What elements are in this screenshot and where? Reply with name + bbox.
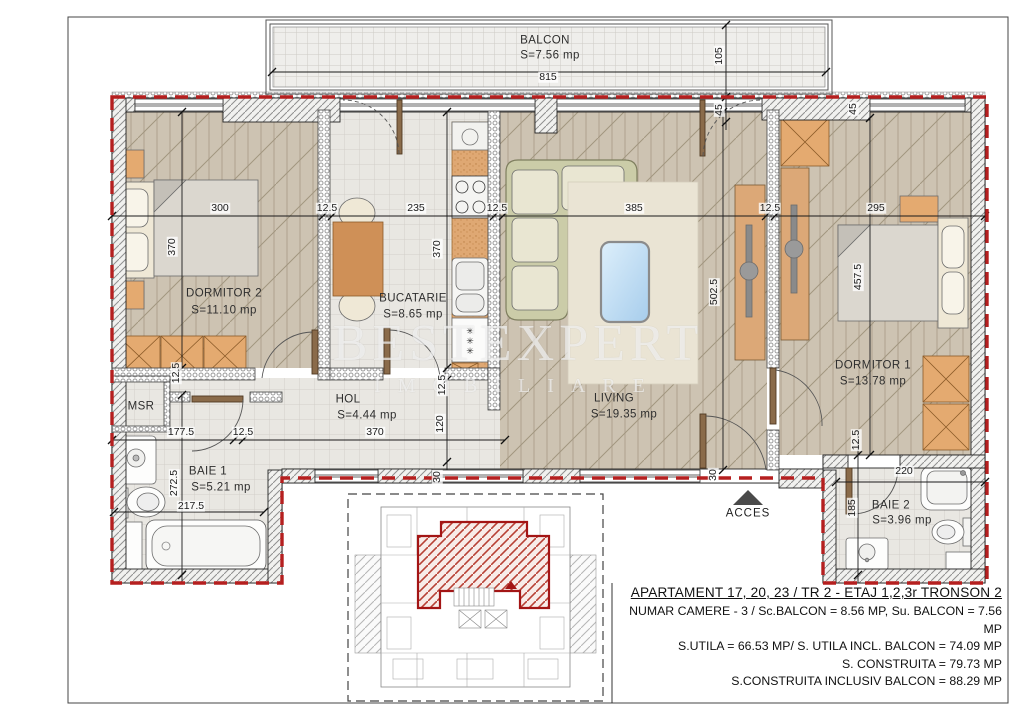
dim-main-235: 235 (406, 203, 426, 214)
built-area-line: S. CONSTRUITA = 79.73 MP (618, 656, 1002, 674)
dim-kitchen-wall: 12.5 (437, 374, 448, 396)
dim-living-depth: 502.5 (709, 278, 720, 306)
room-label-baie2: BAIE 2 (872, 500, 910, 512)
dim-wall-45a: 45 (714, 103, 725, 117)
room-label-dormitor2: DORMITOR 2 (186, 288, 262, 300)
room-area-baie1: S=5.21 mp (191, 482, 251, 494)
kitchen-counter: ✳ ✳ ✳ (452, 122, 489, 376)
dim-balcony-depth: 105 (714, 46, 725, 66)
dim-baie1-wall: 12.5 (232, 427, 254, 438)
dim-kitchen-depth: 370 (432, 239, 443, 259)
dim-wall-30a: 30 (432, 470, 443, 484)
dim-baie2-width: 220 (894, 466, 914, 477)
room-area-dormitor1: S=13.78 mp (840, 376, 906, 388)
balcony-label: BALCON (520, 35, 570, 47)
rooms-balcony-line: NUMAR CAMERE - 3 / Sc.BALCON = 8.56 MP, … (618, 603, 1002, 638)
dim-hol-width: 370 (365, 427, 385, 438)
dim-main-125c: 12.5 (759, 203, 781, 214)
built-area-balcony-line: S.CONSTRUITA INCLUSIV BALCON = 88.29 MP (618, 673, 1002, 691)
dim-baie1-depth: 272.5 (169, 469, 180, 497)
dim-dorm2-wall: 12.5 (171, 362, 182, 384)
room-label-hol: HOL (336, 394, 361, 406)
dim-baie1-a: 177.5 (167, 427, 195, 438)
coffee-table (601, 242, 649, 322)
dim-main-300: 300 (210, 203, 230, 214)
access-arrow-icon (733, 490, 763, 505)
dim-wall-45b: 45 (848, 102, 859, 116)
room-area-dormitor2: S=11.10 mp (191, 305, 256, 317)
balcony-area: S=7.56 mp (520, 50, 580, 62)
dim-baie2-depth: 185 (847, 498, 858, 518)
dim-hall-depth: 120 (435, 414, 446, 434)
dim-main-125b: 12.5 (486, 203, 508, 214)
dim-main-295: 295 (866, 203, 886, 214)
dim-dorm2-depth: 370 (167, 237, 178, 257)
room-label-dormitor1: DORMITOR 1 (835, 360, 911, 372)
room-area-baie2: S=3.96 mp (872, 515, 932, 527)
dim-main-385: 385 (624, 203, 644, 214)
svg-text:✳: ✳ (466, 326, 474, 336)
access-label: ACCES (726, 508, 771, 520)
room-area-living: S=19.35 mp (591, 409, 657, 421)
room-area-hol: S=4.44 mp (337, 410, 397, 422)
room-area-bucatarie: S=8.65 mp (383, 309, 443, 321)
useful-area-line: S.UTILA = 66.53 MP/ S. UTILA INCL. BALCO… (618, 638, 1002, 656)
title-block: APARTAMENT 17, 20, 23 / TR 2 - ETAJ 1,2,… (618, 585, 1002, 691)
room-label-bucatarie: BUCATARIE (379, 293, 447, 305)
dim-wall-30b: 30 (708, 468, 719, 482)
apartment-title: APARTAMENT 17, 20, 23 / TR 2 - ETAJ 1,2,… (618, 585, 1002, 600)
room-label-living: LIVING (594, 393, 634, 405)
svg-text:✳: ✳ (466, 346, 474, 356)
room-label-baie1: BAIE 1 (189, 466, 227, 478)
dim-baie2-wall: 12.5 (851, 429, 862, 451)
floor-plan-page: ✳ ✳ ✳ (0, 0, 1019, 720)
svg-text:✳: ✳ (466, 336, 474, 346)
dim-main-125a: 12.5 (316, 203, 338, 214)
room-label-msr: MSR (128, 401, 155, 413)
dim-dorm1-depth: 457.5 (853, 263, 864, 291)
dim-balcony-width: 815 (538, 72, 558, 83)
key-plan (348, 494, 603, 701)
dim-baie1-width: 217.5 (177, 501, 205, 512)
